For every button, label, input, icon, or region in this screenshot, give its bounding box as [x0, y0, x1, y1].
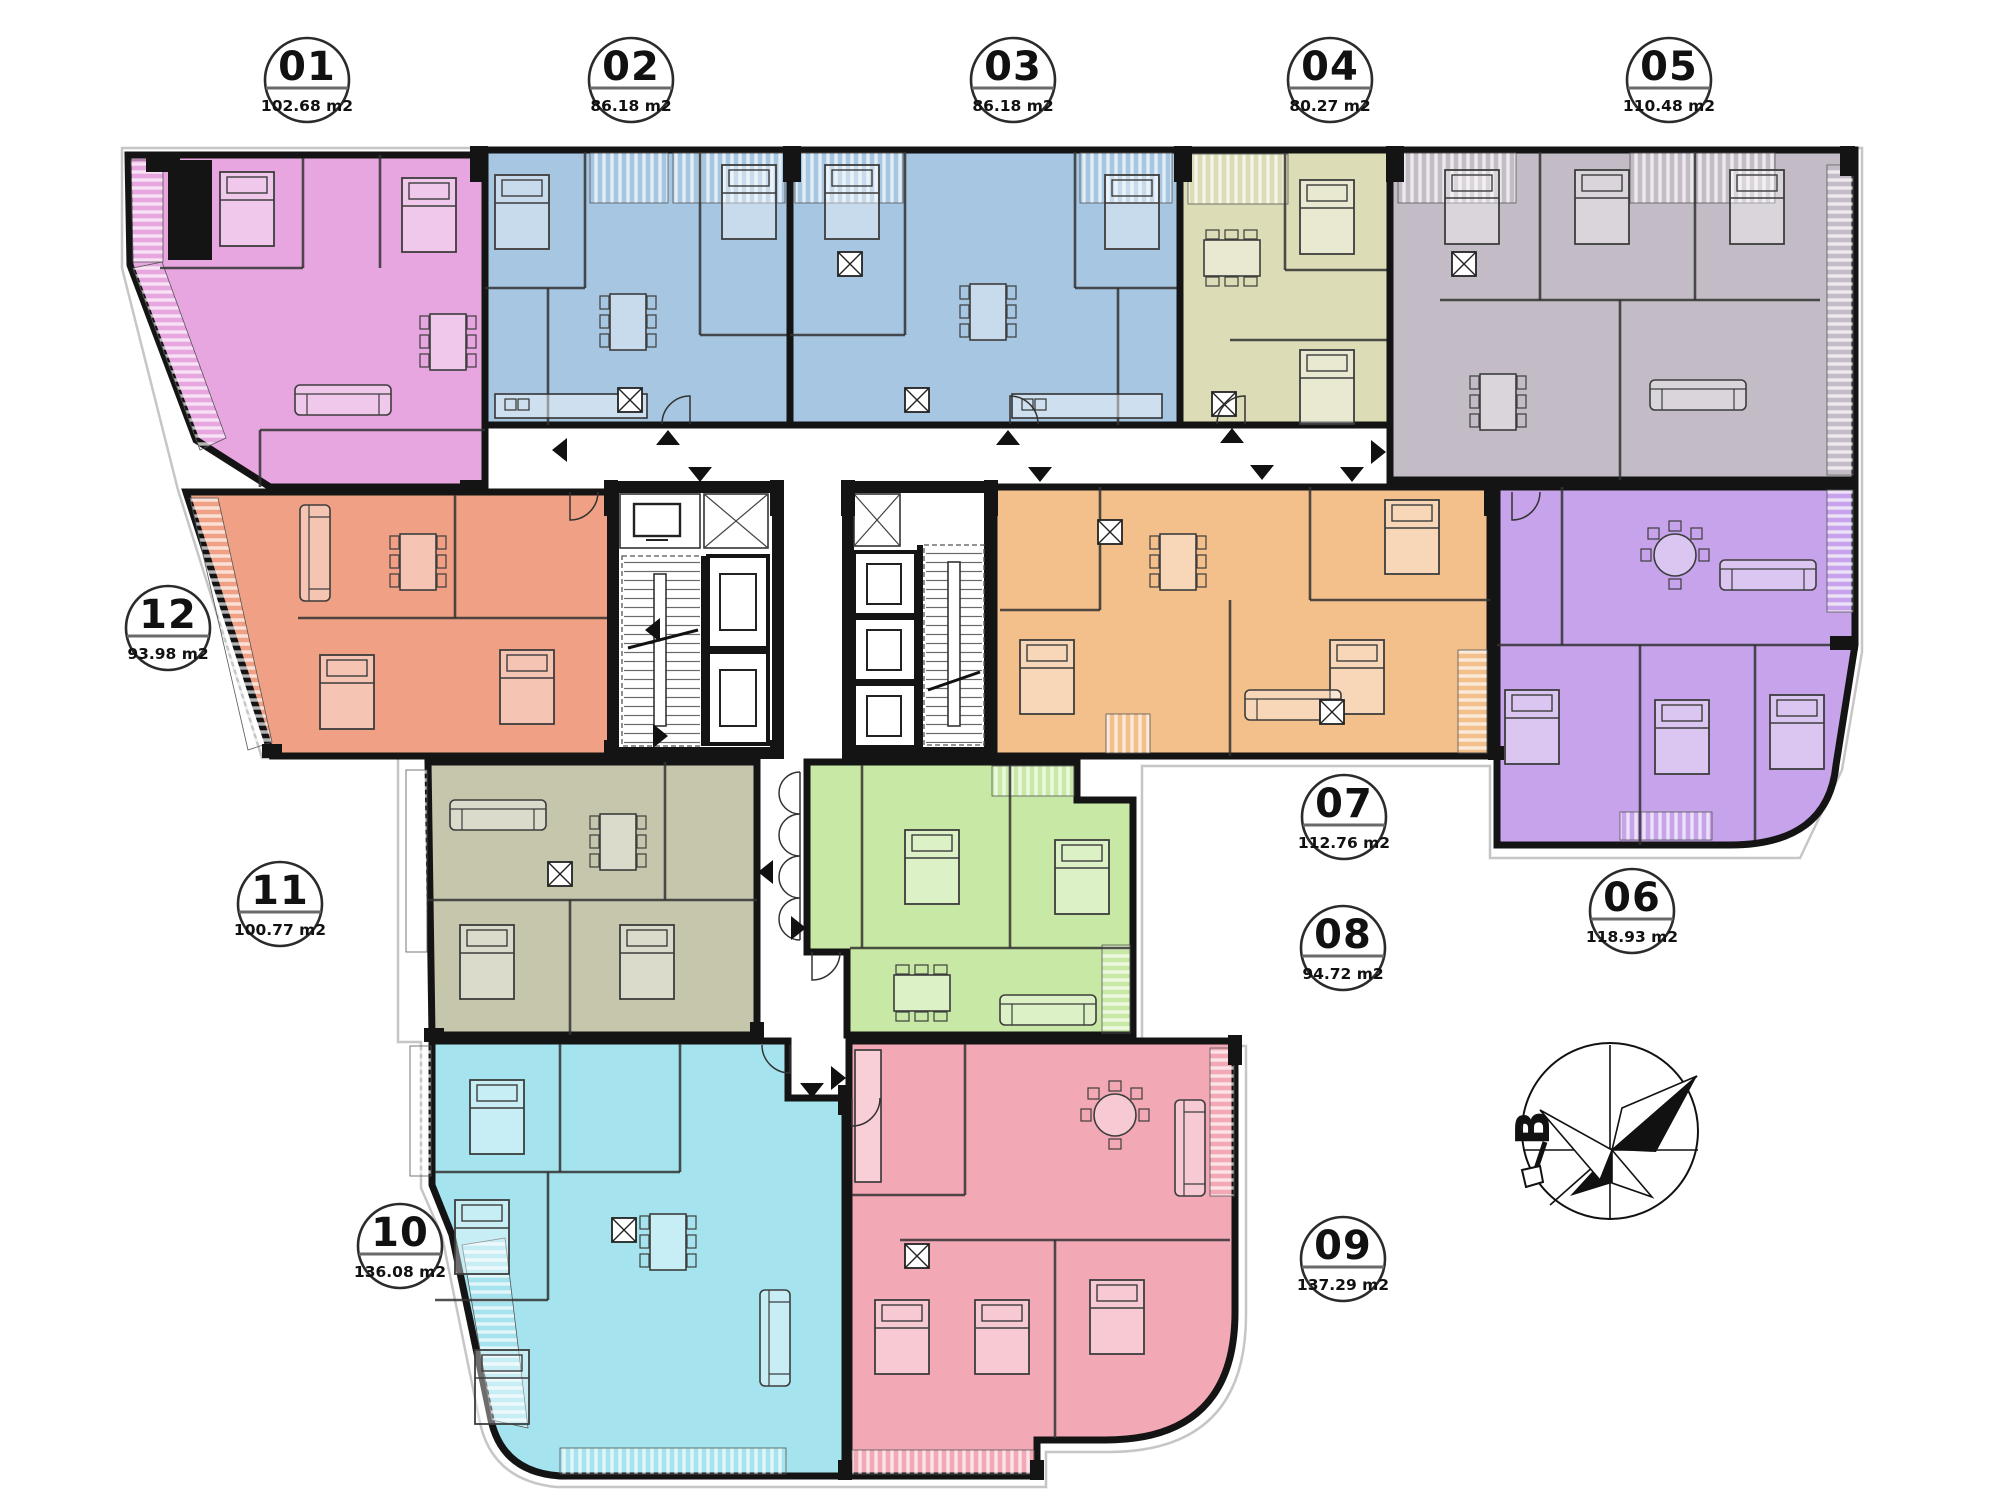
floor-plan-canvas: 01102.68 m20286.18 m20386.18 m20480.27 m…	[0, 0, 2000, 1500]
unit-label-09[interactable]: 09137.29 m2	[1297, 1217, 1389, 1301]
furniture-sofa	[1650, 380, 1746, 410]
kitchen-counter	[855, 1050, 881, 1182]
compass-north-letter: B	[1506, 1110, 1560, 1145]
wall-stub	[1174, 146, 1192, 182]
wall-stub	[984, 480, 998, 516]
wall-stub	[470, 146, 488, 182]
apartment-02-region[interactable]	[485, 150, 790, 425]
unit-number: 06	[1603, 875, 1661, 921]
unit-label-08[interactable]: 0894.72 m2	[1301, 906, 1385, 990]
duct-shaft-icon	[838, 252, 862, 276]
apartment-08-region[interactable]	[807, 762, 1133, 1035]
direction-arrow	[996, 430, 1020, 445]
furniture-bed	[470, 1080, 524, 1154]
unit-area: 102.68 m2	[261, 97, 353, 115]
furniture-bed	[1300, 180, 1354, 254]
furniture-bed	[1055, 840, 1109, 914]
furniture-bed	[495, 175, 549, 249]
unit-area: 110.48 m2	[1623, 97, 1715, 115]
wall-stub	[424, 1028, 444, 1042]
furniture-bed	[875, 1300, 929, 1374]
direction-arrow	[688, 467, 712, 482]
direction-arrow	[1028, 467, 1052, 482]
wall-stub	[1030, 1460, 1044, 1480]
unit-label-02[interactable]: 0286.18 m2	[589, 38, 673, 122]
furniture-bed	[975, 1300, 1029, 1374]
wall-stub	[783, 146, 801, 182]
floor-plan-page: 01102.68 m20286.18 m20386.18 m20480.27 m…	[0, 0, 2000, 1500]
unit-label-01[interactable]: 01102.68 m2	[261, 38, 353, 122]
wall-stub	[838, 1085, 852, 1115]
duct-shaft-icon	[1098, 520, 1122, 544]
wall-stub	[770, 480, 784, 516]
furniture-bed	[1505, 690, 1559, 764]
furniture-bed	[722, 165, 776, 239]
duct-shaft-icon	[905, 388, 929, 412]
apartment-05-region[interactable]	[1390, 150, 1855, 480]
wall-stub	[604, 740, 618, 758]
furniture-bed	[905, 830, 959, 904]
furniture-bed	[620, 925, 674, 999]
wall-stub	[770, 740, 784, 758]
furniture-sofa	[1000, 995, 1096, 1025]
apartment-06-region[interactable]	[1497, 487, 1855, 845]
wall-stub	[838, 1460, 852, 1480]
furniture-bed	[500, 650, 554, 724]
direction-arrow	[1371, 440, 1386, 464]
furniture-bed	[1770, 695, 1824, 769]
unit-area: 93.98 m2	[127, 645, 208, 663]
furniture-bed	[1445, 170, 1499, 244]
furniture-tbl	[640, 1214, 696, 1270]
furniture-tbl	[960, 284, 1016, 340]
unit-area: 86.18 m2	[590, 97, 671, 115]
direction-arrow	[552, 438, 567, 462]
wall-stub	[1488, 746, 1504, 760]
wall-stub	[460, 480, 482, 494]
unit-area: 136.08 m2	[354, 1263, 446, 1281]
apartment-11-region[interactable]	[406, 762, 757, 1035]
furniture-bed	[1300, 350, 1354, 424]
furniture-bed	[1020, 640, 1074, 714]
furniture-bed	[1090, 1280, 1144, 1354]
unit-number: 08	[1314, 912, 1372, 958]
furniture-bed	[455, 1200, 509, 1274]
unit-label-05[interactable]: 05110.48 m2	[1623, 38, 1715, 122]
furniture-tbl	[600, 294, 656, 350]
direction-arrow	[1220, 428, 1244, 443]
unit-number: 03	[984, 44, 1042, 90]
unit-number: 05	[1640, 44, 1698, 90]
unit-area: 100.77 m2	[234, 921, 326, 939]
door-swing	[812, 952, 840, 980]
duct-shaft-icon	[548, 862, 572, 886]
apartment-04-region[interactable]	[1180, 150, 1390, 425]
duct-shaft-icon	[905, 1244, 929, 1268]
furniture-bed	[402, 178, 456, 252]
apartment-07-region[interactable]	[994, 487, 1490, 756]
unit-area: 112.76 m2	[1298, 834, 1390, 852]
furniture-tblh	[894, 965, 950, 1021]
wall-stub	[1386, 146, 1404, 182]
unit-area: 118.93 m2	[1586, 928, 1678, 946]
wall-stub	[1228, 1035, 1242, 1065]
duct-shaft-icon	[612, 1218, 636, 1242]
unit-number: 11	[251, 868, 309, 914]
furniture-bed	[825, 165, 879, 239]
wall-stub	[1840, 146, 1855, 176]
wall-stub	[841, 480, 855, 516]
unit-area: 86.18 m2	[972, 97, 1053, 115]
unit-area: 94.72 m2	[1302, 965, 1383, 983]
unit-number: 10	[371, 1210, 429, 1256]
furniture-sofa	[450, 800, 546, 830]
louver-doors	[779, 772, 800, 940]
furniture-bed	[1730, 170, 1784, 244]
wall-stub	[1484, 480, 1500, 516]
furniture-sofa	[295, 385, 391, 415]
unit-number: 07	[1315, 781, 1373, 827]
furniture-bed	[1105, 175, 1159, 249]
unit-label-07[interactable]: 07112.76 m2	[1298, 775, 1390, 859]
direction-arrow	[1340, 467, 1364, 482]
furniture-sofav	[1175, 1100, 1205, 1196]
unit-label-06[interactable]: 06118.93 m2	[1586, 869, 1678, 953]
apartment-12-region[interactable]	[186, 492, 613, 756]
unit-label-04[interactable]: 0480.27 m2	[1288, 38, 1372, 122]
furniture-tbl	[1150, 534, 1206, 590]
furniture-bed	[460, 925, 514, 999]
duct-shaft-icon	[1320, 700, 1344, 724]
compass-arrow	[1522, 1166, 1543, 1187]
furniture-bed	[1655, 700, 1709, 774]
duct-shaft-icon	[618, 388, 642, 412]
wall-stub	[146, 158, 180, 172]
unit-number: 12	[139, 592, 197, 638]
apartment-10-region[interactable]	[410, 1041, 845, 1476]
unit-label-12[interactable]: 1293.98 m2	[126, 586, 210, 670]
apartment-03-region[interactable]	[790, 150, 1180, 425]
structural-column	[168, 160, 212, 260]
duct-shaft-icon	[1452, 252, 1476, 276]
furniture-sofa	[1720, 560, 1816, 590]
elevator-core-right	[848, 487, 990, 753]
wall-stub	[1830, 636, 1858, 650]
wall-stub	[604, 480, 618, 516]
direction-arrow	[1250, 465, 1274, 480]
furniture-bed	[220, 172, 274, 246]
direction-arrow	[656, 430, 680, 445]
unit-label-03[interactable]: 0386.18 m2	[971, 38, 1055, 122]
wall-stub	[262, 744, 282, 758]
unit-area: 137.29 m2	[1297, 1276, 1389, 1294]
furniture-tbl	[590, 814, 646, 870]
furniture-bed	[475, 1350, 529, 1424]
wall-stub	[750, 1022, 764, 1040]
furniture-sofav	[300, 505, 330, 601]
unit-number: 02	[602, 44, 660, 90]
unit-number: 09	[1314, 1223, 1372, 1269]
furniture-tbl	[1470, 374, 1526, 430]
unit-number: 01	[278, 44, 336, 90]
unit-area: 80.27 m2	[1289, 97, 1370, 115]
furniture-bed	[320, 655, 374, 729]
furniture-bed	[1385, 500, 1439, 574]
elevator-core-left	[613, 487, 778, 753]
furniture-sofav	[760, 1290, 790, 1386]
unit-number: 04	[1301, 44, 1359, 90]
duct-shaft-icon	[1212, 392, 1236, 416]
furniture-bed	[1575, 170, 1629, 244]
unit-label-11[interactable]: 11100.77 m2	[234, 862, 326, 946]
compass-rose: B	[1506, 1043, 1698, 1219]
